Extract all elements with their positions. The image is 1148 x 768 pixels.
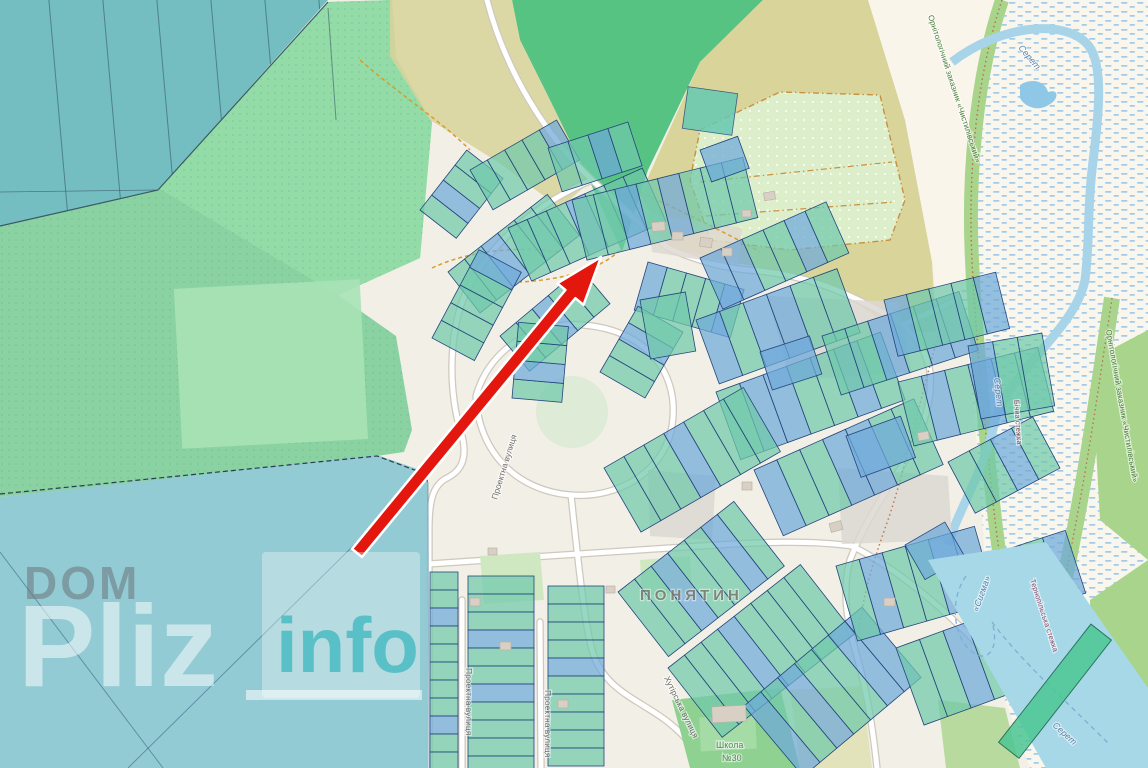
parcel[interactable] bbox=[548, 712, 604, 730]
parcel[interactable] bbox=[548, 622, 604, 640]
building bbox=[558, 700, 568, 708]
parcel[interactable] bbox=[548, 748, 604, 766]
parcel[interactable] bbox=[430, 626, 458, 644]
building bbox=[712, 705, 747, 723]
building bbox=[652, 221, 666, 231]
building bbox=[742, 482, 752, 490]
parcel[interactable] bbox=[468, 666, 534, 684]
map-canvas[interactable]: ПОНЯТИН Проектна вулиця Проектна вулиця … bbox=[0, 0, 1148, 768]
parcel[interactable] bbox=[430, 716, 458, 734]
label-school-line1: Школа bbox=[716, 740, 743, 750]
parcel[interactable] bbox=[430, 644, 458, 662]
label-school-line2: №30 bbox=[722, 753, 742, 763]
building bbox=[699, 237, 712, 248]
parcel[interactable] bbox=[468, 612, 534, 630]
parcel[interactable] bbox=[468, 738, 534, 756]
parcel[interactable] bbox=[430, 680, 458, 698]
label-street-proektna-2: Проектна вулиця bbox=[464, 668, 474, 736]
parcel[interactable] bbox=[430, 662, 458, 680]
parcel[interactable] bbox=[548, 604, 604, 622]
building bbox=[470, 598, 480, 606]
parcel[interactable] bbox=[548, 676, 604, 694]
parcel[interactable] bbox=[468, 576, 534, 594]
building bbox=[672, 232, 683, 240]
building bbox=[763, 191, 775, 201]
parcel[interactable] bbox=[430, 734, 458, 752]
large-parcel-overlay[interactable] bbox=[0, 455, 429, 768]
parcel[interactable] bbox=[430, 752, 458, 768]
parcel[interactable] bbox=[548, 658, 604, 676]
parcel[interactable] bbox=[468, 720, 534, 738]
parcel[interactable] bbox=[548, 694, 604, 712]
parcel[interactable] bbox=[468, 756, 534, 768]
parcel[interactable] bbox=[548, 586, 604, 604]
label-street-proektna-3: Проектна вулиця bbox=[543, 690, 553, 758]
parcel[interactable] bbox=[430, 608, 458, 626]
building bbox=[606, 586, 615, 593]
building bbox=[742, 210, 751, 217]
building bbox=[500, 642, 511, 650]
building bbox=[884, 598, 895, 606]
parcel[interactable] bbox=[430, 572, 458, 590]
parcel[interactable] bbox=[548, 730, 604, 748]
parcel[interactable] bbox=[468, 648, 534, 666]
building bbox=[917, 431, 929, 441]
building bbox=[722, 248, 732, 256]
parcel[interactable] bbox=[640, 292, 696, 359]
map-image[interactable]: ПОНЯТИН Проектна вулиця Проектна вулиця … bbox=[0, 0, 1148, 768]
parcel[interactable] bbox=[682, 87, 737, 136]
label-settlement: ПОНЯТИН bbox=[640, 587, 743, 604]
parcel[interactable] bbox=[430, 590, 458, 608]
parcel[interactable] bbox=[548, 640, 604, 658]
parcel[interactable] bbox=[468, 684, 534, 702]
parcel[interactable] bbox=[430, 698, 458, 716]
parcel[interactable] bbox=[468, 702, 534, 720]
building bbox=[488, 548, 497, 555]
